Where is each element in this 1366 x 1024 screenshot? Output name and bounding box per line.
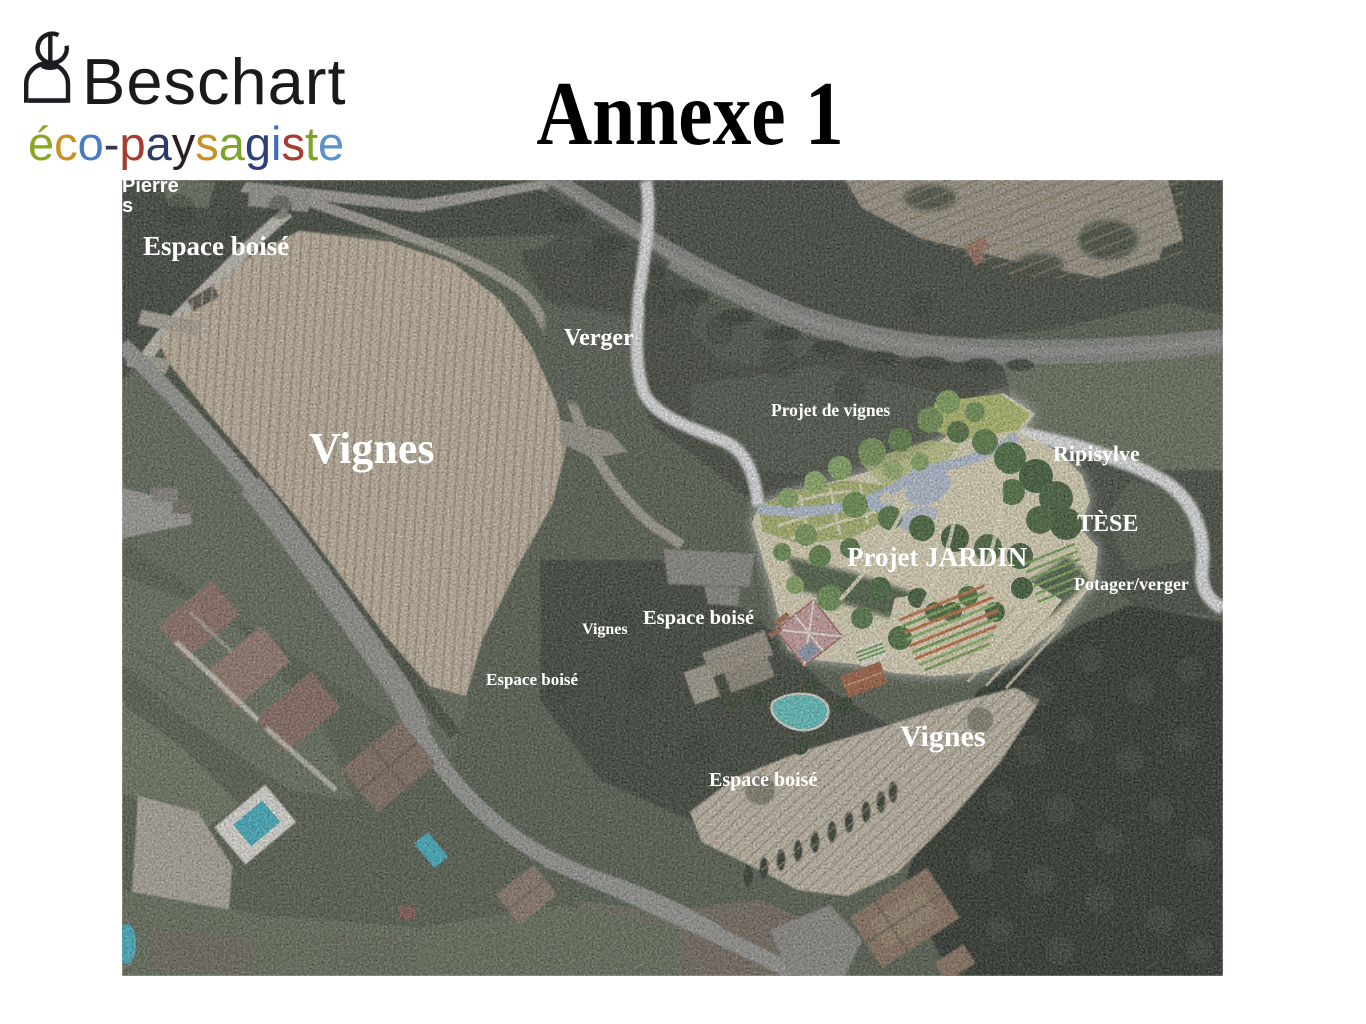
svg-text:Vignes: Vignes (900, 720, 986, 753)
svg-text:Vignes: Vignes (309, 424, 435, 473)
svg-text:s: s (122, 195, 133, 217)
svg-text:Espace boisé: Espace boisé (709, 769, 817, 791)
svg-text:Ripisylve: Ripisylve (1053, 441, 1140, 466)
svg-text:Vignes: Vignes (582, 621, 628, 638)
svg-text:Projet de vignes: Projet de vignes (771, 400, 890, 420)
svg-text:Espace boisé: Espace boisé (643, 607, 754, 629)
svg-text:TÈSE: TÈSE (1077, 511, 1138, 537)
svg-text:Verger: Verger (564, 325, 634, 351)
svg-text:Espace boisé: Espace boisé (143, 231, 289, 261)
svg-text:Espace boisé: Espace boisé (486, 670, 579, 689)
svg-text:Potager/verger: Potager/verger (1074, 574, 1189, 594)
svg-text:Projet JARDIN: Projet JARDIN (847, 542, 1028, 572)
